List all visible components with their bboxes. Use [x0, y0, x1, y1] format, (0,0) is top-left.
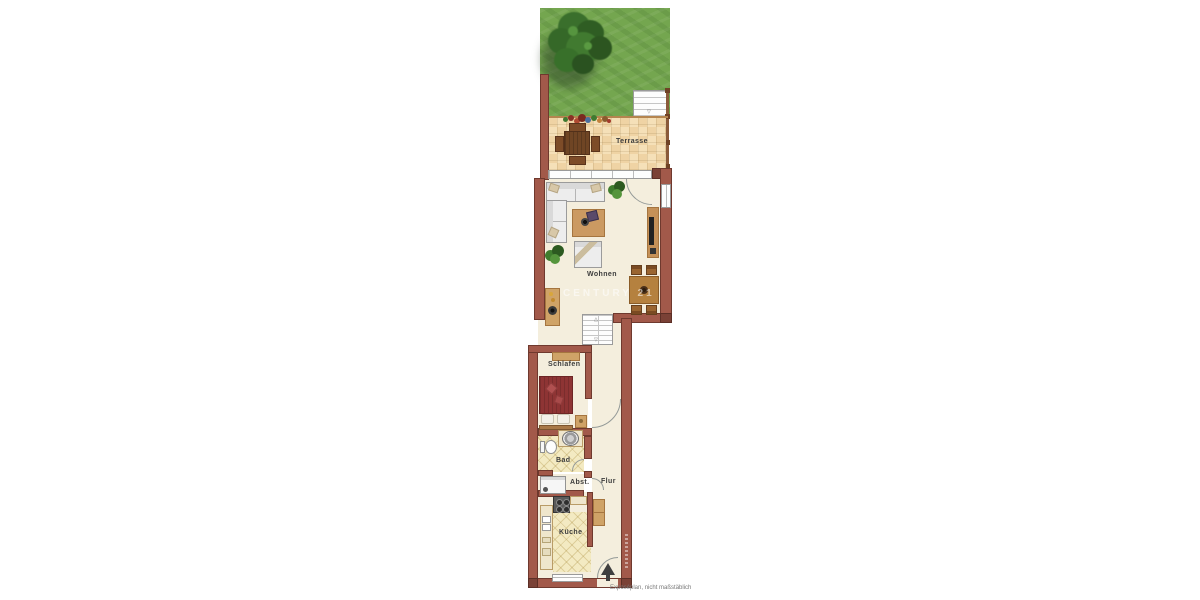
- terrace-chair: [555, 136, 564, 152]
- bed-pillow: [541, 414, 554, 424]
- toilet-icon: [545, 440, 557, 454]
- tree-icon: [544, 12, 620, 84]
- stove-icon: [553, 496, 570, 513]
- fence-rail: [666, 90, 669, 170]
- disclaimer-text: Exposéplan, nicht maßstäblich: [610, 585, 691, 591]
- stairs-up-arrow-icon: ▽: [594, 316, 598, 321]
- floor-plan: ▽ Terrasse: [0, 0, 1200, 600]
- brand-watermark: CENTURY 21: [563, 288, 655, 299]
- stairs-down-arrow-icon: ▽: [594, 338, 598, 343]
- kitchen-counter: [570, 496, 587, 505]
- kitchen-sink-icon: [542, 524, 551, 531]
- dining-chair: [646, 265, 657, 275]
- entrance-arrow-stem: [606, 575, 610, 581]
- counter-item: [542, 548, 551, 556]
- armchair: [574, 241, 602, 268]
- wall: [584, 436, 592, 459]
- room-label-bad: Bad: [556, 457, 570, 464]
- bed: [539, 376, 573, 430]
- washing-machine-door: [543, 487, 548, 492]
- wall: [585, 352, 592, 399]
- hallway-floor: [592, 355, 621, 578]
- room-label-kueche: Küche: [559, 529, 582, 536]
- wall: [584, 471, 592, 478]
- tv-icon: [649, 217, 654, 245]
- shelf-item: [551, 298, 555, 302]
- wall: [534, 178, 545, 320]
- plant-icon: [608, 181, 625, 199]
- room-label-terrasse: Terrasse: [616, 138, 648, 145]
- room-label-wohnen: Wohnen: [587, 271, 617, 278]
- plant-icon: [545, 245, 564, 264]
- sink-icon: [562, 431, 579, 446]
- fence-post: [665, 88, 670, 93]
- kitchen-tile-floor: [553, 512, 591, 572]
- wall: [540, 74, 549, 180]
- hifi-icon: [650, 248, 656, 254]
- dining-chair: [631, 265, 642, 275]
- bed-pillow: [557, 414, 570, 424]
- wall: [660, 313, 672, 323]
- terrace-table: [564, 131, 590, 155]
- kitchen-window: [552, 574, 583, 582]
- living-room-side-window: [661, 184, 671, 208]
- dining-chair: [631, 305, 642, 315]
- wall-watermark: [625, 534, 628, 568]
- nightstand-item: [579, 419, 583, 423]
- hall-cabinet: [593, 499, 605, 526]
- kitchen-sink-icon: [542, 516, 551, 523]
- dining-chair: [646, 305, 657, 315]
- entrance-arrow-icon: [601, 563, 615, 575]
- shelf-item: [549, 292, 553, 296]
- room-label-abst: Abst.: [570, 479, 590, 486]
- terrace-window-band: [548, 170, 652, 179]
- shelf-bowl-icon: [548, 306, 557, 315]
- stairs-down-arrow-icon: ▽: [647, 110, 651, 115]
- dresser: [552, 352, 580, 361]
- room-label-flur: Flur: [601, 478, 616, 485]
- counter-item: [542, 537, 551, 543]
- terrace-chair: [591, 136, 600, 152]
- wall: [528, 578, 538, 588]
- wall: [528, 345, 538, 588]
- terrace-chair: [569, 156, 586, 165]
- bowl-icon: [581, 218, 589, 226]
- room-label-schlafen: Schlafen: [548, 361, 580, 368]
